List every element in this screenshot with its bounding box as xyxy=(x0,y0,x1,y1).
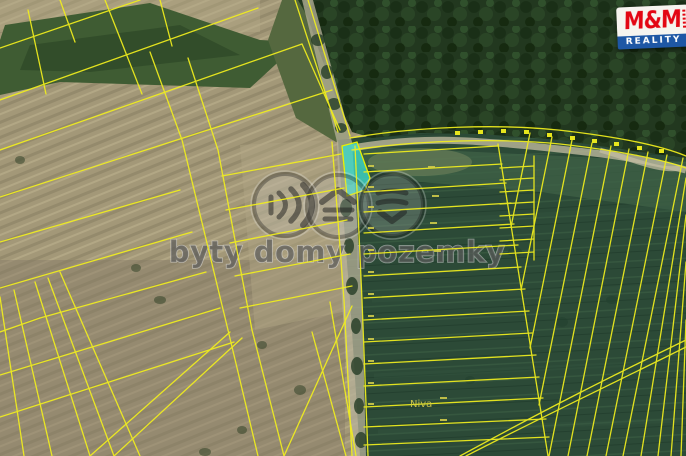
watermark-circle xyxy=(361,174,423,236)
brand-logo-title: M&M xyxy=(624,7,681,34)
watermark-text: byty domy pozemky xyxy=(169,235,506,269)
place-label: Niva xyxy=(410,399,432,410)
brand-logo-side-marks xyxy=(682,10,686,29)
brand-logo: M&M REALITY xyxy=(616,4,686,49)
brand-logo-subtitle: REALITY xyxy=(626,36,682,47)
satellite-map: byty domy pozemky xyxy=(0,0,686,456)
map-canvas[interactable]: byty domy pozemky xyxy=(0,0,686,456)
brand-logo-top: M&M xyxy=(616,4,686,36)
